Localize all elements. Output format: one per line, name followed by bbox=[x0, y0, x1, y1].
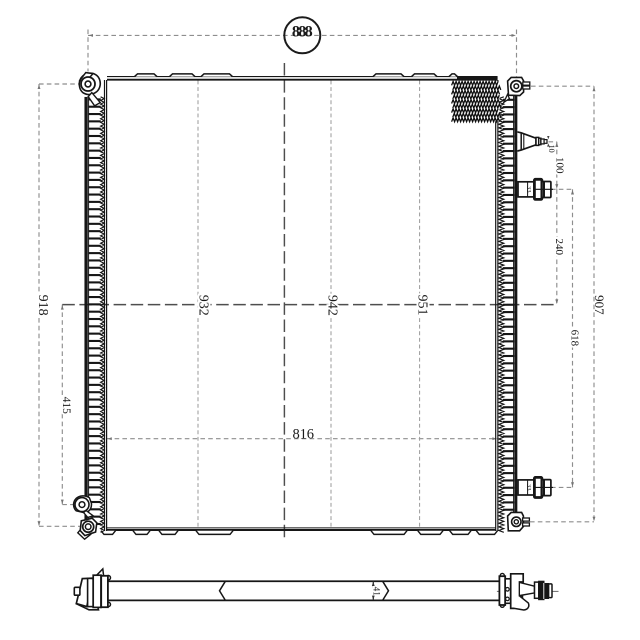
svg-text:240: 240 bbox=[553, 239, 565, 256]
svg-text:100: 100 bbox=[554, 157, 566, 174]
svg-text:10: 10 bbox=[547, 145, 556, 153]
svg-text:415: 415 bbox=[60, 397, 72, 415]
svg-text:918: 918 bbox=[35, 295, 50, 316]
svg-text:951: 951 bbox=[414, 295, 429, 316]
svg-text:618: 618 bbox=[568, 330, 580, 347]
svg-text:33: 33 bbox=[525, 484, 532, 491]
svg-text:816: 816 bbox=[292, 427, 314, 443]
svg-text:888: 888 bbox=[292, 22, 313, 40]
svg-text:907: 907 bbox=[592, 295, 607, 315]
svg-text:932: 932 bbox=[196, 295, 211, 316]
svg-text:41: 41 bbox=[371, 587, 381, 597]
svg-text:942: 942 bbox=[325, 295, 340, 316]
svg-text:33: 33 bbox=[525, 186, 532, 193]
